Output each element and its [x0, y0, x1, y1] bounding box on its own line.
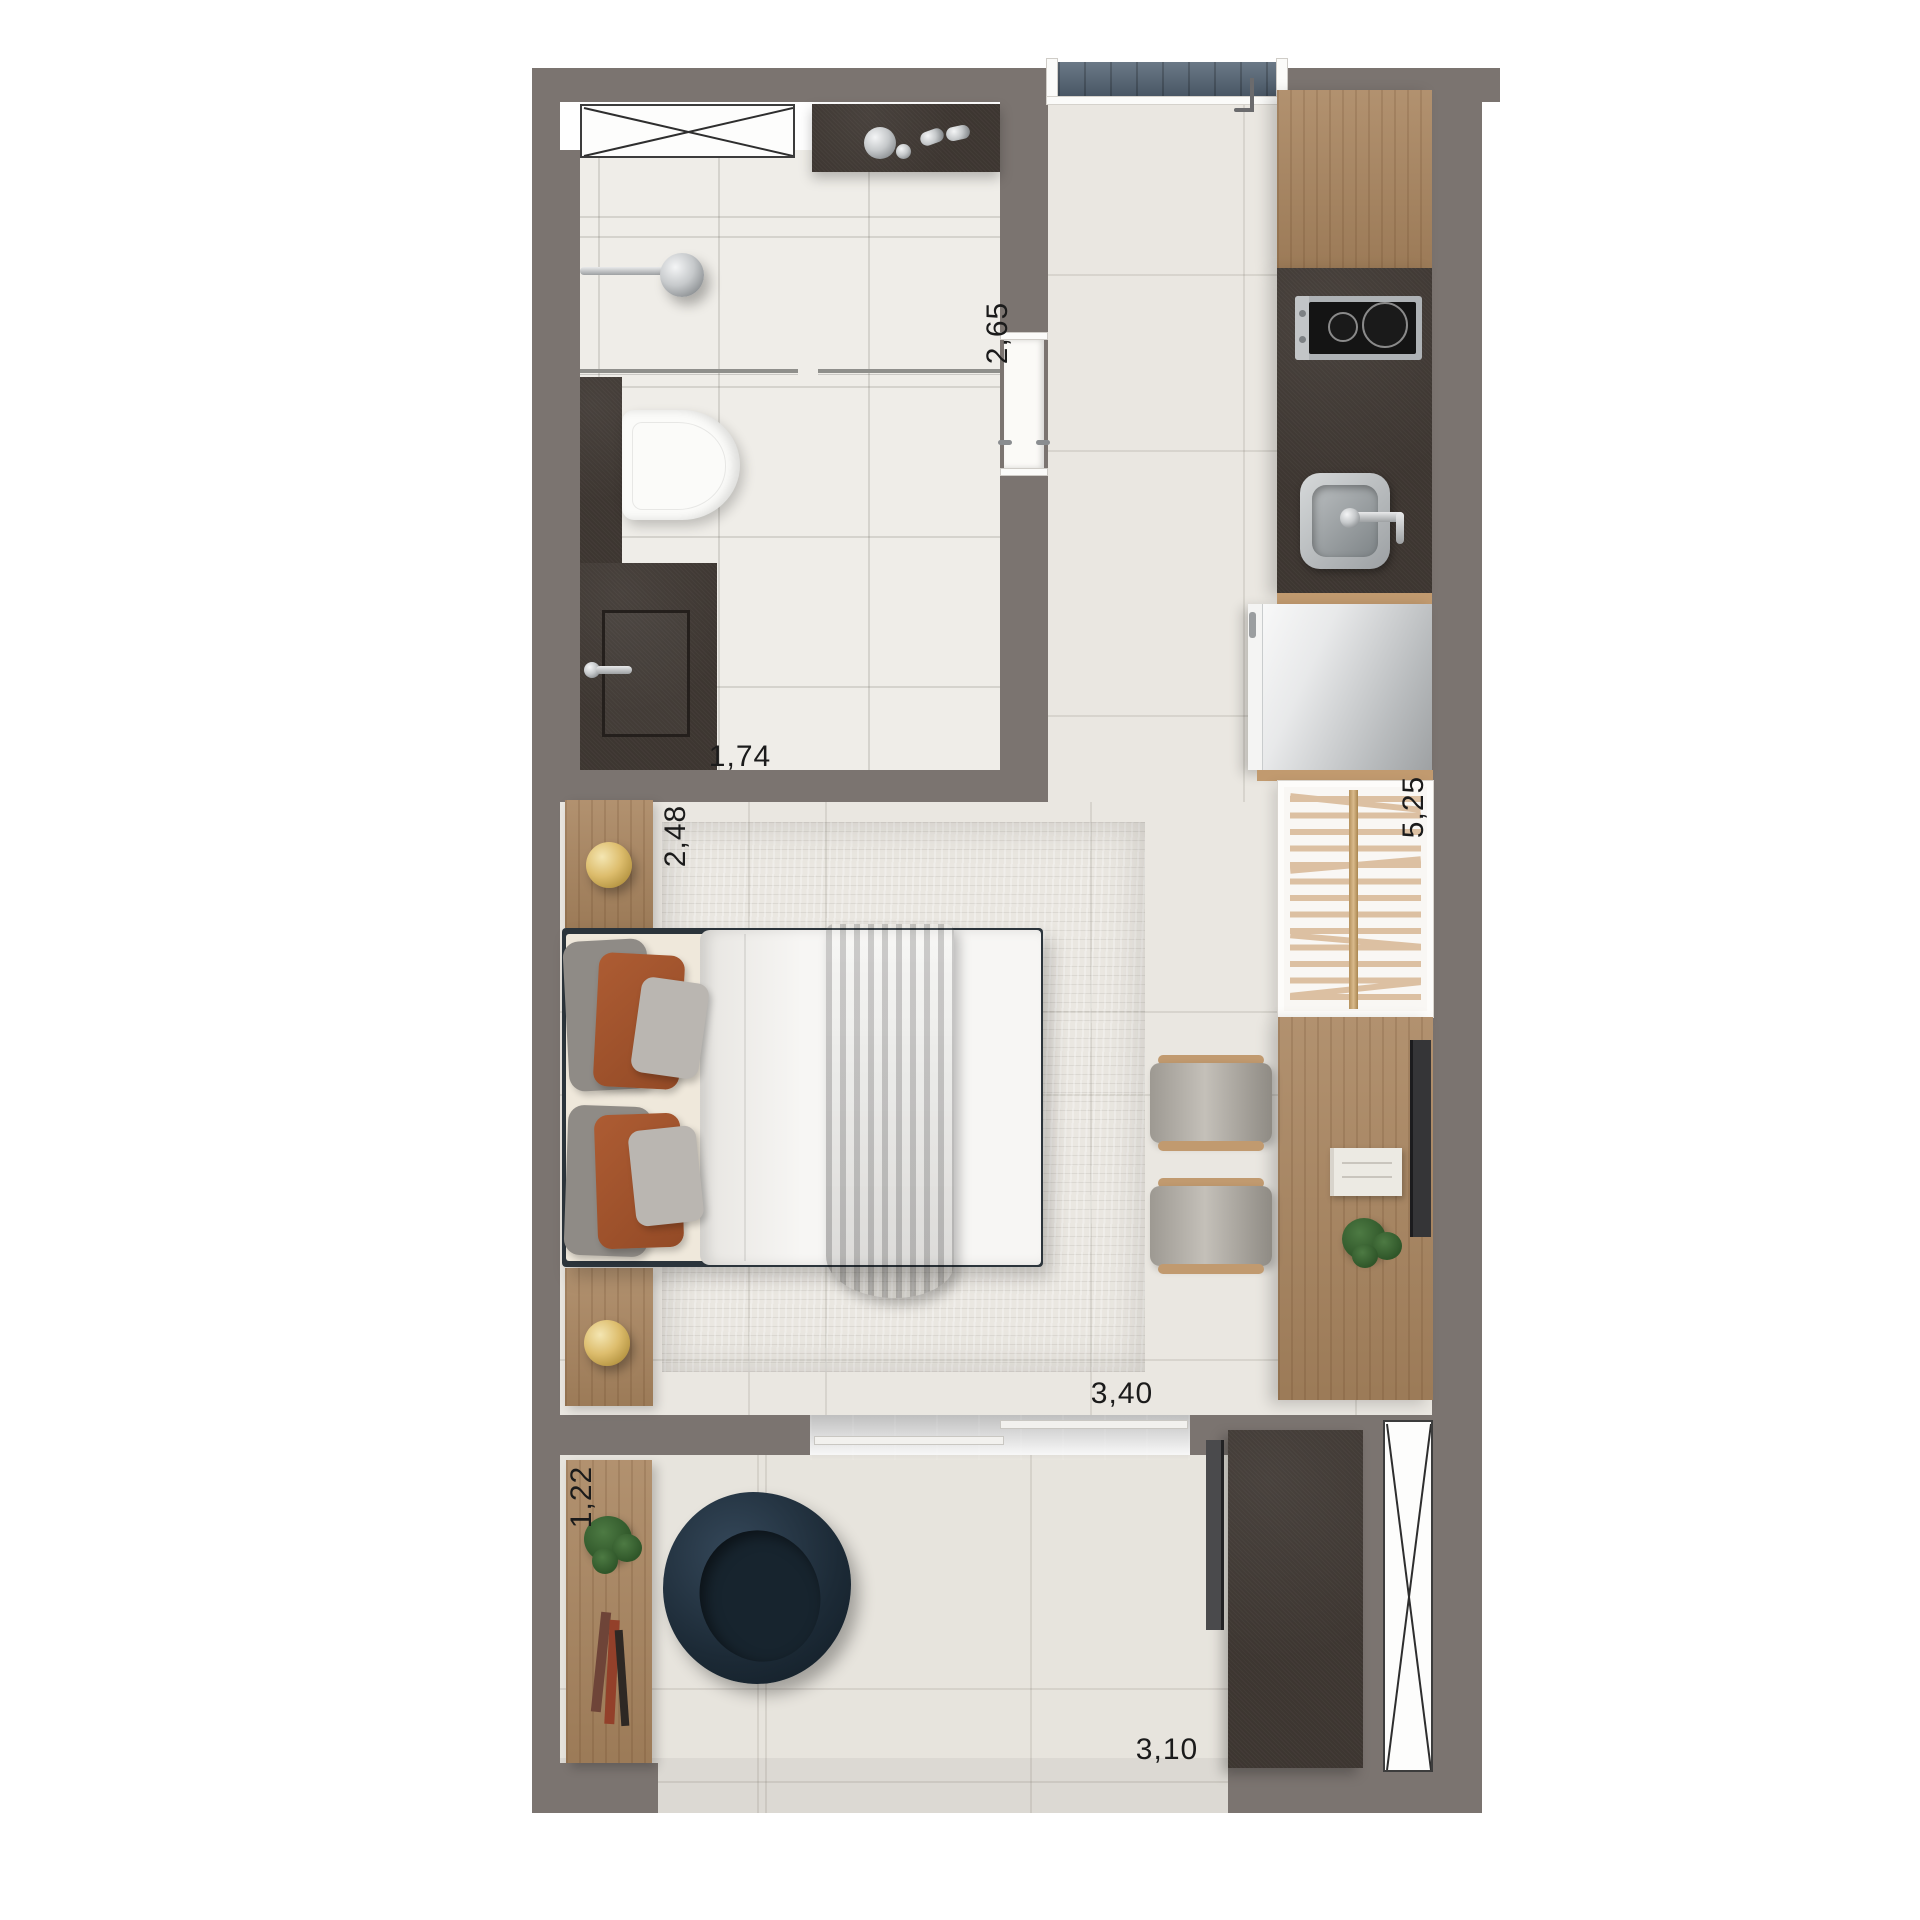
toilet-seat-line: [632, 422, 726, 510]
balcony-cabinet: [1228, 1430, 1363, 1768]
window-casement-icon: [582, 106, 793, 156]
floor-plan-canvas: 2,65 1,74 2,48 5,25 3,40 1,22 3,10: [0, 0, 1920, 1920]
sliding-door-rail-right: [1000, 1420, 1188, 1429]
bed-cushion-1: [630, 976, 711, 1081]
dimension-label-wardrobe-vertical: 5,25: [1397, 776, 1431, 838]
sink-faucet-base: [1340, 508, 1360, 528]
table-lamp-bottom: [584, 1320, 630, 1366]
wall-left: [532, 68, 560, 1763]
shower-glass-partition: [580, 369, 1000, 373]
shower-glass-echo: [580, 374, 1000, 375]
cooktop-knob-strip: [1295, 296, 1309, 360]
vanity-faucet: [864, 127, 896, 159]
kitchen-counter-wood: [1277, 90, 1432, 268]
counter-wood-strip-1: [1277, 593, 1432, 604]
dimension-label-bedroom-vertical: 2,48: [659, 805, 693, 867]
desk-book: [1330, 1148, 1402, 1196]
entry-door-handle-icon: [1250, 78, 1254, 112]
window-casement-icon: [1385, 1422, 1431, 1770]
cooktop-knob-1: [1299, 310, 1306, 317]
cooktop-burner-small-icon: [1328, 312, 1358, 342]
desk-chair-1: [1150, 1063, 1272, 1143]
terrace-plant-leaf-2: [592, 1548, 618, 1574]
double-bed: [562, 928, 1043, 1267]
hallway-floor: [1048, 96, 1277, 802]
desk-chair-1-bar-bottom: [1158, 1141, 1264, 1151]
sliding-door-rail-left: [814, 1436, 1004, 1445]
dimension-label-terrace-horizontal: 3,10: [1136, 1733, 1198, 1767]
wardrobe-rail: [1349, 790, 1358, 1009]
wall-bathroom-bottom: [532, 770, 1048, 802]
desk-plant-leaf-2: [1352, 1244, 1378, 1268]
entry-door-handle-hook-icon: [1234, 108, 1254, 112]
wall-left-bathroom: [560, 150, 580, 770]
entry-door-mat: [1058, 62, 1276, 96]
toilet-cistern-cabinet: [580, 377, 622, 563]
terrace-slab-edge: [560, 1758, 1228, 1813]
bed-throw: [826, 924, 954, 1298]
wall-bottom-left-corner: [532, 1763, 658, 1813]
bed-duvet-fold: [744, 934, 746, 1261]
desk-chair-2: [1150, 1186, 1272, 1266]
bed-cushion-2: [627, 1125, 705, 1228]
bathroom-door-handle-inner-icon: [998, 440, 1012, 445]
wall-top-left: [532, 68, 1057, 102]
balcony-tv: [1206, 1440, 1224, 1630]
wall-bottom-right: [1228, 1768, 1482, 1813]
dimension-label-bathroom-vertical: 2,65: [981, 302, 1015, 364]
desk-chair-2-bar-bottom: [1158, 1264, 1264, 1274]
fridge: [1248, 604, 1432, 770]
vanity-counter: [812, 104, 1000, 172]
cooktop-burner-large-icon: [1362, 302, 1408, 348]
floor-plan-page: { "app": { "type": "floor-plan", "name":…: [0, 0, 1920, 1920]
dimension-label-bathroom-horizontal: 1,74: [709, 740, 771, 774]
cabinet-door-handle-icon: [596, 666, 632, 674]
dimension-label-terrace-vertical: 1,22: [565, 1466, 599, 1528]
shower-glass-gap: [798, 367, 818, 376]
table-lamp-top: [586, 842, 632, 888]
shower-arm: [580, 267, 668, 275]
dimension-label-living-horizontal: 3,40: [1091, 1377, 1153, 1411]
shower-head: [660, 253, 704, 297]
bathroom-window: [580, 104, 795, 158]
bathroom-door-frame-bottom: [1000, 468, 1048, 476]
fridge-handle-icon: [1249, 612, 1256, 638]
wall-terrace-left-segment: [560, 1415, 810, 1455]
vanity-knob: [896, 144, 911, 159]
wall-right: [1432, 68, 1482, 1813]
bathroom-door-handle-outer-icon: [1036, 440, 1050, 445]
cooktop-knob-2: [1299, 336, 1306, 343]
desk-book-line-2: [1342, 1176, 1392, 1178]
sink-faucet-spout: [1396, 512, 1404, 544]
balcony-window: [1383, 1420, 1433, 1772]
desk-tv: [1410, 1040, 1431, 1237]
desk-book-line-1: [1342, 1162, 1392, 1164]
